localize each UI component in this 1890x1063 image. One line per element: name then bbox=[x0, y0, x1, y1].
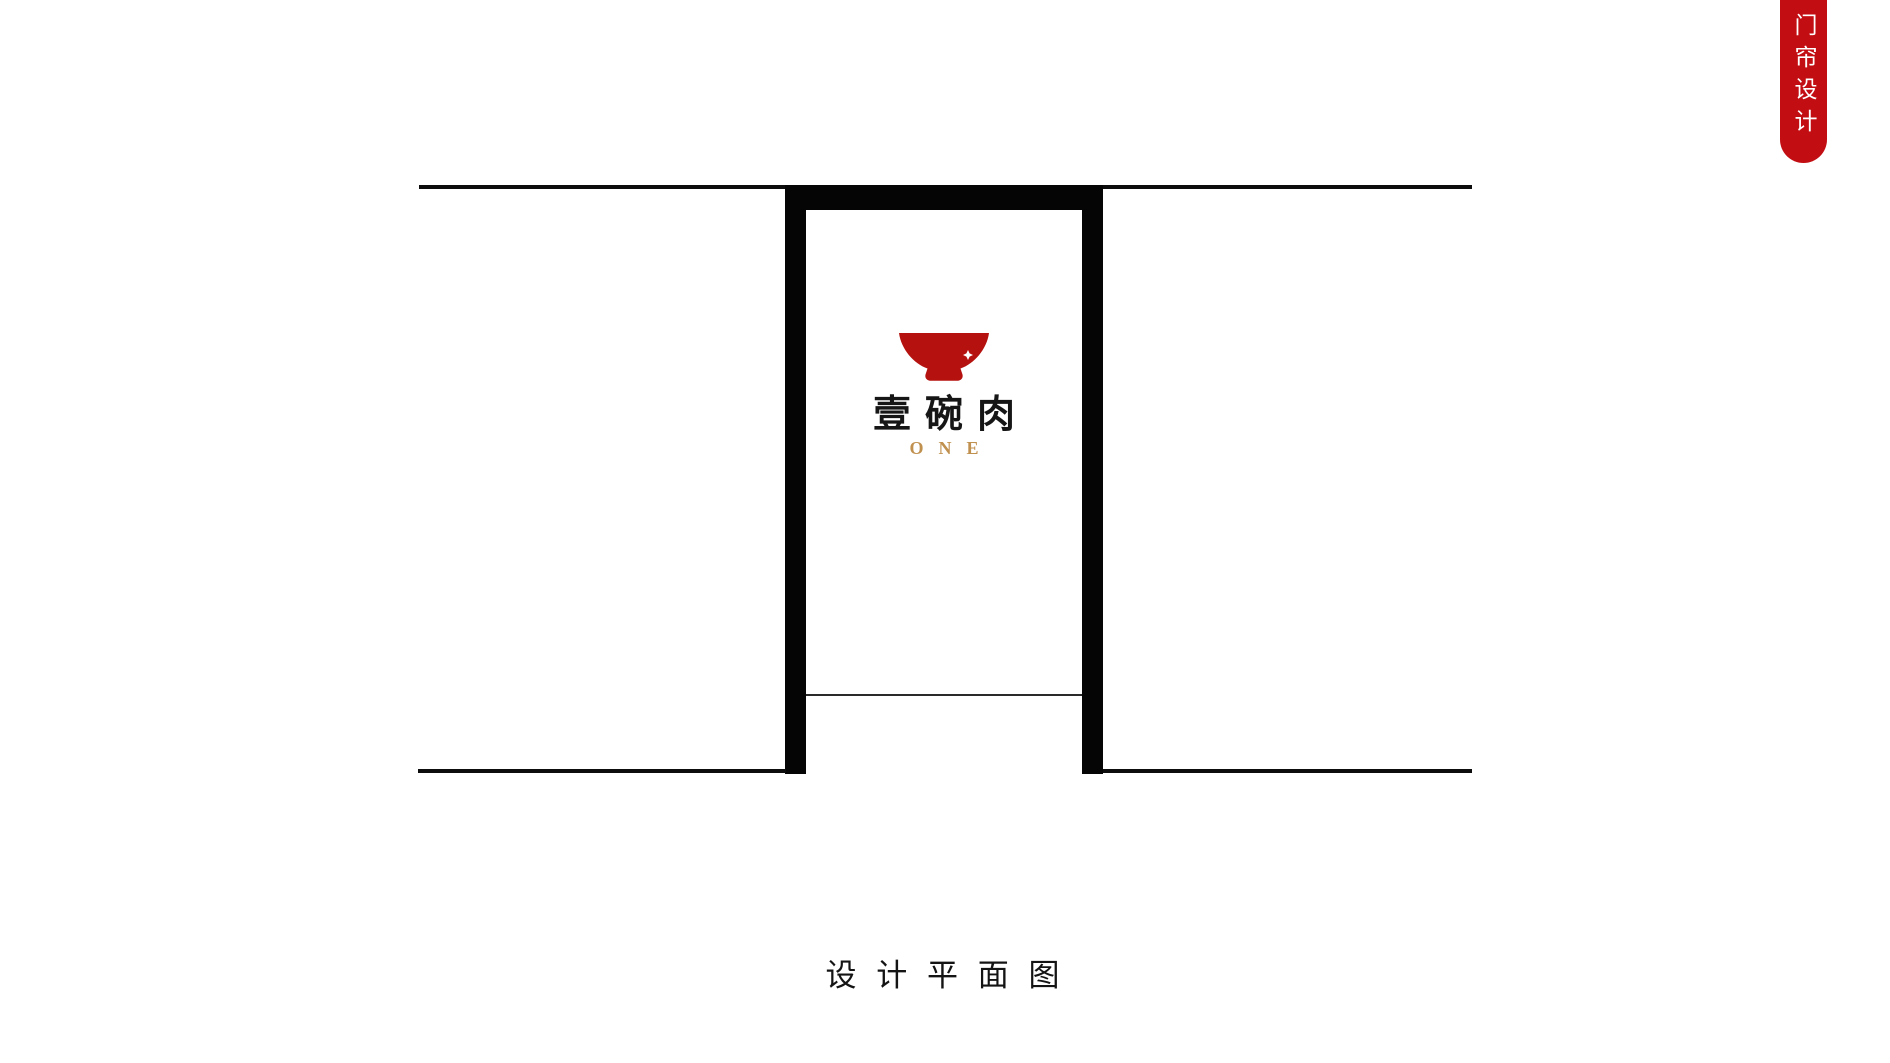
curtain-hem-line bbox=[806, 694, 1082, 696]
ribbon-label: 门帘设计 bbox=[1792, 0, 1815, 141]
caption-label: 设 计 平 面 图 bbox=[419, 950, 1472, 995]
door-jamb-left bbox=[785, 185, 806, 774]
wall-line-bottom-right bbox=[1103, 769, 1472, 773]
red-bowl-icon bbox=[898, 333, 990, 383]
ribbon-badge: 门帘设计 bbox=[1780, 0, 1827, 163]
wall-line-bottom-left bbox=[418, 769, 786, 773]
curtain-panel: 壹碗肉 ONE bbox=[806, 210, 1082, 694]
logo-subtitle: ONE bbox=[806, 438, 1082, 459]
design-canvas: 门帘设计 壹碗肉 ONE 设 计 平 面 图 bbox=[0, 0, 1890, 1063]
door-jamb-right bbox=[1082, 185, 1103, 774]
door-lintel bbox=[785, 185, 1103, 210]
bowl-shape bbox=[899, 333, 989, 381]
logo-title: 壹碗肉 bbox=[806, 396, 1082, 436]
